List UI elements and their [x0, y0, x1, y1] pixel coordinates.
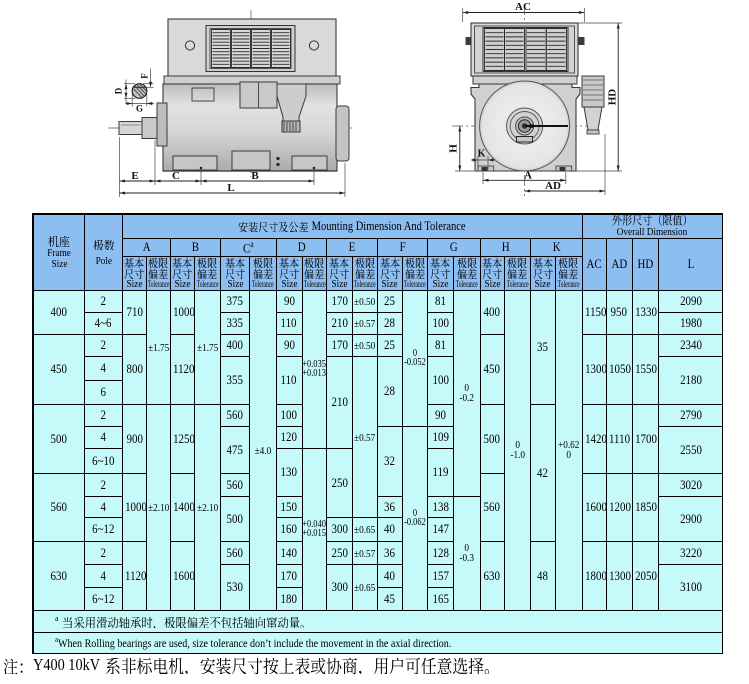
- svg-text:H: H: [448, 144, 460, 153]
- svg-text:L: L: [227, 182, 234, 194]
- svg-text:AC: AC: [515, 1, 531, 13]
- svg-text:D: D: [114, 87, 124, 94]
- svg-text:C: C: [172, 170, 180, 182]
- svg-text:K: K: [478, 149, 486, 160]
- svg-text:A: A: [524, 170, 532, 182]
- svg-text:F: F: [139, 73, 149, 79]
- svg-text:HD: HD: [607, 89, 619, 106]
- svg-text:G: G: [136, 104, 143, 114]
- svg-text:B: B: [251, 170, 259, 182]
- svg-text:E: E: [131, 170, 138, 182]
- svg-text:AD: AD: [545, 180, 561, 192]
